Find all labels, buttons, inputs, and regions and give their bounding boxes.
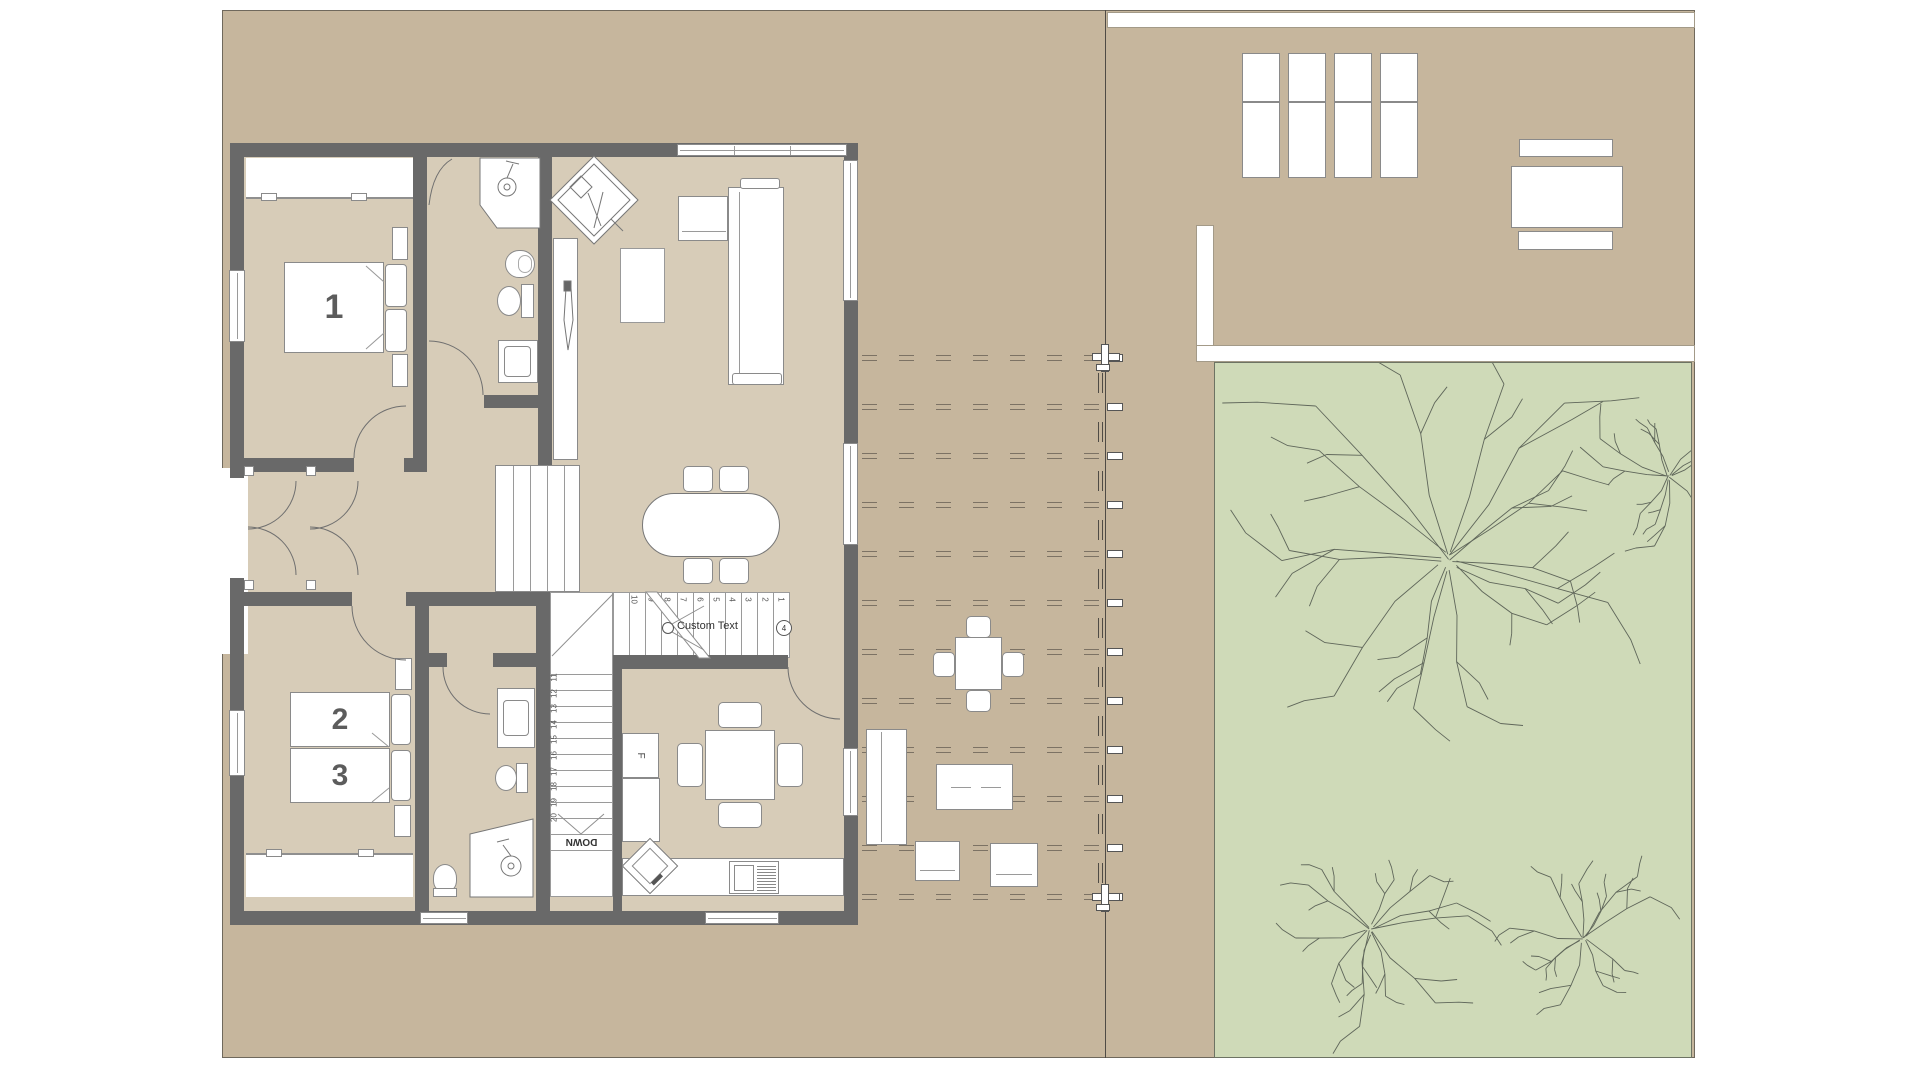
rug[interactable] — [620, 248, 665, 323]
stair-tread — [551, 834, 612, 835]
window — [229, 710, 245, 776]
patio-bench[interactable] — [1519, 139, 1613, 157]
window — [229, 270, 245, 342]
bed-label-3: 3 — [290, 748, 390, 803]
fence-tick — [1107, 648, 1123, 656]
fence-mark — [1098, 422, 1099, 442]
patio-top-strip — [1107, 12, 1695, 28]
wall — [415, 606, 429, 911]
toilet-tank — [433, 888, 457, 897]
fence-mark — [1098, 863, 1099, 883]
bathroom-vanity[interactable] — [498, 340, 538, 383]
stairs-lower-flight[interactable] — [550, 592, 613, 897]
fence-mark — [1098, 569, 1099, 589]
stair-number: 14 — [550, 718, 559, 730]
outdoor-dining-table[interactable] — [955, 637, 1002, 690]
tree[interactable] — [1580, 404, 1692, 551]
fence-mark — [1102, 618, 1103, 638]
kitchen-chair[interactable] — [718, 802, 762, 828]
stair-tread — [551, 706, 612, 707]
wall — [536, 592, 550, 911]
fence-mark — [1098, 765, 1099, 785]
pillow — [385, 309, 407, 352]
sofa-chaise[interactable] — [678, 196, 728, 241]
kitchen-chair[interactable] — [677, 743, 703, 787]
fence-mark — [1102, 520, 1103, 540]
pillow — [391, 694, 411, 745]
stair-tread — [551, 738, 612, 739]
dining-table[interactable] — [642, 493, 780, 557]
pergola-beam — [862, 355, 1105, 361]
stair-tread — [551, 786, 612, 787]
stair-tread — [757, 592, 758, 658]
louvre-panel[interactable] — [1380, 102, 1418, 178]
toilet-tank — [521, 284, 534, 318]
stair-tread — [551, 818, 612, 819]
fence-mark — [1102, 863, 1103, 883]
wall — [404, 458, 427, 472]
stair-number: 4 — [728, 594, 737, 606]
fence-mark — [1102, 814, 1103, 834]
fence-mark — [1098, 618, 1099, 638]
appliance-grill — [757, 865, 776, 891]
stair-number: 16 — [550, 750, 559, 762]
stair-annotation-circle[interactable] — [662, 622, 674, 634]
stair-number: 18 — [550, 781, 559, 793]
stair-number: 6 — [695, 594, 704, 606]
pergola-beam — [862, 845, 1105, 851]
window — [843, 160, 858, 301]
sofa[interactable] — [728, 187, 784, 385]
kitchen-table[interactable] — [705, 730, 775, 800]
louvre-panel[interactable] — [1288, 53, 1326, 102]
kitchen-counter[interactable] — [622, 778, 660, 842]
dining-chair[interactable] — [683, 466, 713, 492]
stair-number: 19 — [550, 796, 559, 808]
stair-number: 12 — [550, 687, 559, 699]
louvre-panel[interactable] — [1334, 102, 1372, 178]
fence-mark — [1098, 814, 1099, 834]
toilet[interactable] — [497, 286, 521, 316]
fence-tick — [1107, 599, 1123, 607]
patio-bottom-strip — [1196, 345, 1695, 362]
fence-tick — [1107, 403, 1123, 411]
window-pane — [351, 193, 367, 201]
stair-number: 1 — [777, 594, 786, 606]
fence-mark — [1102, 569, 1103, 589]
pergola-beam — [862, 600, 1105, 606]
dishwasher[interactable] — [729, 861, 779, 894]
stair-number: 3 — [744, 594, 753, 606]
stair-tread — [741, 592, 742, 658]
door-frame — [306, 466, 316, 476]
stair-marker-circle[interactable]: 4 — [776, 620, 792, 636]
wall — [538, 143, 552, 465]
window — [843, 748, 858, 816]
pergola-beam — [862, 502, 1105, 508]
hall-closet[interactable] — [495, 465, 580, 592]
outdoor-sofa[interactable] — [866, 729, 907, 845]
fence-tick — [1107, 501, 1123, 509]
window — [677, 144, 847, 156]
tree[interactable] — [1276, 860, 1501, 1054]
fence-mark — [1102, 716, 1103, 736]
bed-label-2: 2 — [290, 692, 390, 747]
stair-number: 17 — [550, 765, 559, 777]
door-frame — [306, 580, 316, 590]
toilet-tank — [516, 763, 528, 793]
louvre-panel[interactable] — [1288, 102, 1326, 178]
pergola-beam — [862, 404, 1105, 410]
window-pane — [261, 193, 277, 201]
bidet[interactable] — [505, 250, 535, 278]
tree[interactable] — [1222, 363, 1640, 741]
fence-mark — [1098, 520, 1099, 540]
tree[interactable] — [1495, 856, 1680, 1015]
stair-number: 10 — [630, 594, 639, 606]
louvre-panel[interactable] — [1334, 53, 1372, 102]
fence-mark — [1102, 765, 1103, 785]
fence-tick — [1107, 452, 1123, 460]
sofa-armrest — [732, 373, 782, 385]
wall — [406, 592, 536, 606]
pergola-beam — [862, 551, 1105, 557]
wall — [413, 157, 427, 458]
kitchen-chair[interactable] — [718, 702, 762, 728]
louvre-panel[interactable] — [1242, 102, 1280, 178]
stair-annotation-text[interactable]: Custom Text — [677, 620, 738, 632]
door-frame — [244, 466, 254, 476]
fence-mark — [1102, 373, 1103, 393]
patio-left-strip — [1196, 225, 1214, 362]
bathroom-vanity[interactable] — [497, 688, 535, 748]
outdoor-chair[interactable] — [966, 616, 991, 638]
stair-tread — [551, 674, 612, 675]
window — [705, 912, 779, 924]
entry-opening[interactable] — [230, 478, 244, 578]
outdoor-chair[interactable] — [1002, 652, 1024, 677]
wall — [613, 669, 622, 911]
dining-chair[interactable] — [719, 466, 749, 492]
fence-mark — [1102, 422, 1103, 442]
outdoor-chair[interactable] — [966, 690, 991, 712]
pillow — [385, 264, 407, 307]
stair-number: 5 — [711, 594, 720, 606]
stair-number: 9 — [646, 594, 655, 606]
fence-mark — [1098, 373, 1099, 393]
toilet[interactable] — [495, 765, 517, 791]
fence-mark — [1102, 667, 1103, 687]
pillow — [391, 750, 411, 801]
patio-bench[interactable] — [1518, 231, 1613, 250]
nightstand[interactable] — [395, 658, 412, 690]
outdoor-armchair[interactable] — [915, 841, 960, 881]
stair-number: 8 — [662, 594, 671, 606]
survey-cross — [1096, 364, 1110, 371]
fence-mark — [1098, 471, 1099, 491]
fence-tick — [1107, 844, 1123, 852]
stair-tread — [551, 802, 612, 803]
stair-tread — [551, 690, 612, 691]
louvre-panel[interactable] — [1242, 53, 1280, 102]
fence-tick — [1107, 746, 1123, 754]
sideboard[interactable] — [553, 238, 578, 460]
fence-tick — [1107, 697, 1123, 705]
dining-chair[interactable] — [719, 558, 749, 584]
stair-tread — [551, 850, 612, 851]
stair-number: 11 — [550, 672, 559, 684]
nightstand[interactable] — [392, 354, 408, 387]
pergola-beam — [862, 453, 1105, 459]
window — [843, 443, 858, 545]
stair-tread — [551, 754, 612, 755]
fence-tick — [1107, 795, 1123, 803]
window — [420, 912, 468, 924]
stair-tread — [551, 722, 612, 723]
survey-cross — [1096, 904, 1110, 911]
louvre-panel[interactable] — [1380, 53, 1418, 102]
stair-number: 15 — [550, 734, 559, 746]
pergola-beam — [862, 894, 1105, 900]
stair-number: 13 — [550, 703, 559, 715]
lawn — [1214, 362, 1692, 1058]
dining-chair[interactable] — [683, 558, 713, 584]
kitchen-chair[interactable] — [777, 743, 803, 787]
stair-tread — [551, 770, 612, 771]
outdoor-chair[interactable] — [933, 652, 955, 677]
fence-tick — [1107, 550, 1123, 558]
stair-tread — [773, 592, 774, 658]
wall — [230, 592, 352, 606]
door-frame — [244, 580, 254, 590]
stairs-down-label: DOWN — [550, 836, 613, 847]
patio-table[interactable] — [1511, 166, 1623, 228]
fridge-label: F — [618, 737, 663, 774]
floor-plan-canvas: 1234567891011121314151617181920 — [0, 0, 1920, 1080]
nightstand[interactable] — [392, 227, 408, 260]
outdoor-armchair[interactable] — [990, 843, 1038, 887]
stair-number: 20 — [550, 812, 559, 824]
stair-number: 7 — [679, 594, 688, 606]
sofa-armrest — [740, 178, 780, 189]
bed-label-1: 1 — [284, 262, 384, 353]
window-pane — [358, 849, 374, 857]
stair-number: 2 — [760, 594, 769, 606]
wall — [493, 653, 536, 667]
nightstand[interactable] — [394, 805, 411, 837]
fence-mark — [1102, 471, 1103, 491]
wall — [613, 655, 788, 669]
wall — [429, 653, 447, 667]
bedroom23-window-bay — [246, 853, 413, 897]
fence-mark — [1098, 716, 1099, 736]
outdoor-coffee-table[interactable] — [936, 764, 1013, 810]
fence-mark — [1098, 667, 1099, 687]
window-pane — [266, 849, 282, 857]
